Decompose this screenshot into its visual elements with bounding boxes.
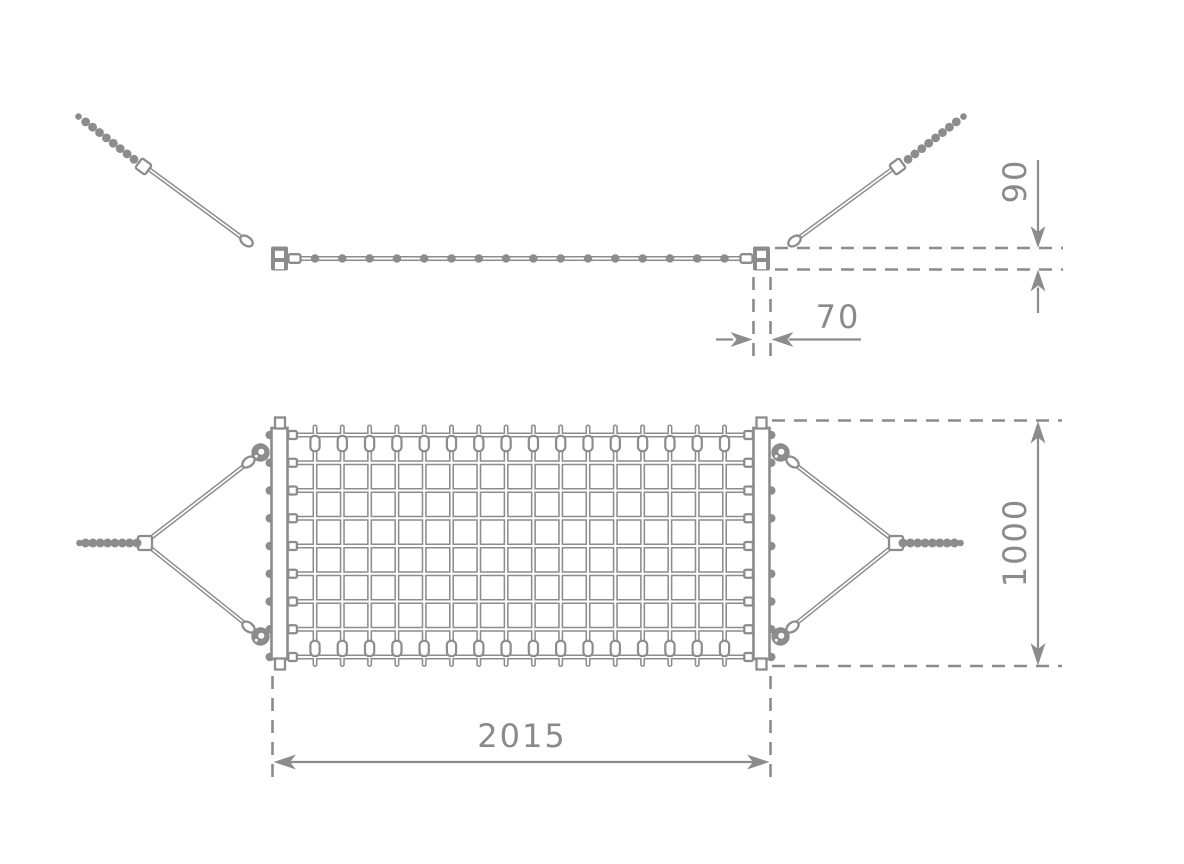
- net-intersection: [450, 517, 453, 520]
- tube-bead: [338, 254, 346, 262]
- right-rope-connector: [889, 158, 906, 175]
- net-intersection: [696, 628, 699, 631]
- twisted-rope-bead: [102, 134, 111, 143]
- right-bar-top-cap: [757, 418, 767, 429]
- net-intersection: [696, 572, 699, 575]
- net-intersection: [505, 600, 508, 603]
- net-intersection: [396, 517, 399, 520]
- tube-bead: [529, 254, 537, 262]
- net-intersection: [669, 600, 672, 603]
- net-stub-left: [288, 570, 297, 578]
- rope-sleeve-bottom: [310, 641, 319, 656]
- dimension-2015: 2015: [273, 676, 771, 784]
- net-intersection: [532, 545, 535, 548]
- net-intersection: [559, 489, 562, 492]
- net-intersection: [396, 600, 399, 603]
- rope-sleeve-bottom: [583, 641, 592, 656]
- net-intersection: [423, 628, 426, 631]
- net-stub-right: [744, 487, 753, 495]
- twisted-rope-bead: [911, 150, 920, 159]
- dim-70-arrowhead-right: [731, 332, 753, 347]
- net-intersection: [559, 572, 562, 575]
- net-intersection: [696, 517, 699, 520]
- net-intersection: [505, 517, 508, 520]
- net-intersection: [368, 545, 371, 548]
- net-ropes-core: [288, 427, 754, 665]
- technical-drawing-canvas: 90 70 1000 2015: [0, 0, 1184, 864]
- net-intersection: [696, 600, 699, 603]
- twisted-rope-bead: [116, 144, 125, 153]
- net-intersection: [532, 572, 535, 575]
- net-intersection: [477, 545, 480, 548]
- chain-link: [240, 619, 256, 635]
- net-intersection: [641, 600, 644, 603]
- net-intersection: [450, 545, 453, 548]
- rope-sleeve-bottom: [693, 641, 702, 656]
- net-intersection: [341, 517, 344, 520]
- net-intersection: [450, 572, 453, 575]
- tube-bead: [584, 254, 592, 262]
- shackle-pin: [255, 639, 258, 642]
- left-edge-bar: [272, 428, 288, 659]
- rope-sleeve-top: [420, 436, 429, 451]
- net-intersection: [669, 461, 672, 464]
- net-intersection: [423, 489, 426, 492]
- net-intersection: [669, 489, 672, 492]
- tube-bead: [557, 254, 565, 262]
- net-intersection: [696, 489, 699, 492]
- net-intersection: [505, 489, 508, 492]
- twisted-rope-bead: [95, 128, 104, 137]
- net-intersection: [559, 600, 562, 603]
- rope-sleeve-top: [365, 436, 374, 451]
- rope-sleeve-top: [447, 436, 456, 451]
- net-intersection: [723, 545, 726, 548]
- rope-sleeve-top: [392, 436, 401, 451]
- net-stub-right: [744, 431, 753, 439]
- net-intersection: [314, 489, 317, 492]
- net-intersection: [587, 600, 590, 603]
- net-intersection: [450, 628, 453, 631]
- left-twisted-rope-end: [75, 113, 138, 163]
- rope-sleeve-bottom: [474, 641, 483, 656]
- shackle-pin: [775, 455, 778, 458]
- rope-sleeve-top: [665, 436, 674, 451]
- net-intersection: [505, 628, 508, 631]
- hammock-technical-drawing: 90 70 1000 2015: [0, 0, 1184, 864]
- rope-sleeve-bottom: [392, 641, 401, 656]
- net-intersection: [477, 489, 480, 492]
- shackle-pin: [255, 455, 258, 458]
- net-intersection: [559, 628, 562, 631]
- rope-sleeve-bottom: [502, 641, 511, 656]
- net-intersection: [587, 628, 590, 631]
- net-intersection: [532, 628, 535, 631]
- chain-link: [784, 619, 800, 635]
- dimension-70: 70: [716, 277, 861, 362]
- twisted-rope-bead: [109, 139, 118, 148]
- net-intersection: [423, 545, 426, 548]
- left-chain-link: [238, 233, 254, 248]
- net-stub-left: [288, 598, 297, 606]
- net-intersection: [587, 572, 590, 575]
- tube-bead: [365, 254, 373, 262]
- net-intersection: [341, 461, 344, 464]
- twisted-rope-bead: [945, 123, 954, 132]
- rope-sleeve-bottom: [420, 641, 429, 656]
- net-intersection: [477, 628, 480, 631]
- rope-sleeve-bottom: [447, 641, 456, 656]
- twisted-rope-bead: [81, 539, 90, 548]
- net-intersection: [723, 517, 726, 520]
- rope-sleeve-bottom: [338, 641, 347, 656]
- net-intersection: [368, 572, 371, 575]
- twisted-rope-bead: [88, 123, 97, 132]
- net-intersection: [641, 461, 644, 464]
- net-intersection: [723, 600, 726, 603]
- net-intersection: [614, 489, 617, 492]
- net-intersection: [614, 461, 617, 464]
- shackle-hole: [258, 633, 264, 639]
- twisted-rope-bead: [123, 150, 132, 159]
- net-intersection: [614, 517, 617, 520]
- net-intersection: [532, 461, 535, 464]
- rope-sleeve-bottom: [529, 641, 538, 656]
- net-intersection: [450, 461, 453, 464]
- twisted-rope-bead: [924, 139, 933, 148]
- left-bar-bottom-cap: [275, 659, 285, 670]
- tube-bead: [502, 254, 510, 262]
- right-suspension-rope: [791, 169, 893, 244]
- tube-bead: [311, 254, 319, 262]
- rope-sleeve-top: [611, 436, 620, 451]
- tube-bead: [420, 254, 428, 262]
- right-chain-link: [786, 233, 802, 248]
- net-intersection: [423, 461, 426, 464]
- right-twisted-rope-end: [899, 539, 964, 548]
- dim-2015-label: 2015: [477, 717, 566, 755]
- net-intersection: [587, 517, 590, 520]
- chain-link: [240, 454, 256, 470]
- net-intersection: [587, 461, 590, 464]
- net-intersection: [532, 517, 535, 520]
- dim-1000-label: 1000: [996, 498, 1034, 587]
- twisted-rope-bead: [931, 134, 940, 143]
- plan-view: [76, 418, 964, 670]
- tube-bead: [475, 254, 483, 262]
- net-intersection: [532, 489, 535, 492]
- net-intersection: [559, 461, 562, 464]
- net-intersection: [368, 628, 371, 631]
- rope-sleeve-top: [693, 436, 702, 451]
- net-intersection: [614, 572, 617, 575]
- twisted-rope-bead: [950, 539, 959, 548]
- twisted-rope-bead: [81, 117, 90, 126]
- dimension-90: 90: [775, 159, 1063, 313]
- net-intersection: [341, 628, 344, 631]
- net-intersection: [423, 600, 426, 603]
- right-edge-bar: [754, 428, 770, 659]
- twisted-rope-bead: [917, 144, 926, 153]
- net-intersection: [396, 461, 399, 464]
- twisted-rope-bead: [904, 155, 913, 164]
- net-intersection: [641, 545, 644, 548]
- left-clamp-stub: [289, 254, 301, 263]
- net-intersection: [641, 489, 644, 492]
- net-intersection: [559, 545, 562, 548]
- net-intersection: [614, 545, 617, 548]
- net-intersection: [341, 600, 344, 603]
- net-intersection: [723, 489, 726, 492]
- dim-70-label: 70: [816, 298, 861, 336]
- rope-sleeve-top: [338, 436, 347, 451]
- net-stub-right: [744, 542, 753, 550]
- rope-sleeve-top: [638, 436, 647, 451]
- net-intersection: [368, 517, 371, 520]
- net-intersection: [723, 461, 726, 464]
- net-stub-left: [288, 487, 297, 495]
- left-twisted-rope-end: [76, 539, 141, 548]
- right-bar-bottom-cap: [757, 659, 767, 670]
- net-intersection: [505, 461, 508, 464]
- net-stub-left: [288, 459, 297, 467]
- net-intersection: [341, 545, 344, 548]
- net-intersection: [669, 517, 672, 520]
- net-intersection: [641, 572, 644, 575]
- tube-bead: [720, 254, 728, 262]
- shackle-hole: [778, 633, 784, 639]
- net-intersection: [696, 461, 699, 464]
- net-intersection: [477, 600, 480, 603]
- net-intersection: [559, 517, 562, 520]
- net-intersection: [723, 628, 726, 631]
- net-stub-right: [744, 625, 753, 633]
- net-intersection: [696, 545, 699, 548]
- net-intersection: [477, 517, 480, 520]
- right-clamp-stub: [741, 254, 753, 263]
- chain-link: [784, 454, 800, 470]
- net-stub-right: [744, 514, 753, 522]
- net-stub-left: [288, 625, 297, 633]
- net-intersection: [614, 628, 617, 631]
- left-suspension-bridle: [150, 459, 253, 630]
- tube-bead: [611, 254, 619, 262]
- net-intersection: [341, 572, 344, 575]
- net-intersection: [641, 517, 644, 520]
- net-intersection: [450, 489, 453, 492]
- net-intersection: [669, 545, 672, 548]
- net-intersection: [477, 572, 480, 575]
- net-stub-left: [288, 653, 297, 661]
- net-intersection: [450, 600, 453, 603]
- net-intersection: [396, 545, 399, 548]
- rope-sleeve-top: [502, 436, 511, 451]
- shackle-hole: [258, 449, 264, 455]
- rope-sleeve-bottom: [556, 641, 565, 656]
- rope-sleeve-top: [310, 436, 319, 451]
- net-intersection: [505, 572, 508, 575]
- rope-sleeve-bottom: [611, 641, 620, 656]
- net-intersection: [505, 545, 508, 548]
- net-intersection: [314, 461, 317, 464]
- tube-bead: [447, 254, 455, 262]
- twisted-rope-bead: [952, 117, 961, 126]
- net-intersection: [669, 572, 672, 575]
- net-intersection: [341, 489, 344, 492]
- net-intersection: [314, 600, 317, 603]
- net-intersection: [669, 628, 672, 631]
- right-suspension-bridle: [788, 459, 891, 630]
- twisted-rope-bead: [130, 155, 139, 164]
- net-intersection: [314, 517, 317, 520]
- twisted-rope-tip: [75, 113, 82, 120]
- rope-sleeve-bottom: [665, 641, 674, 656]
- net-intersection: [396, 572, 399, 575]
- net-intersection: [368, 600, 371, 603]
- left-suspension-rope: [148, 169, 250, 244]
- net-stub-right: [744, 459, 753, 467]
- dim-90-label: 90: [996, 159, 1034, 204]
- tube-bead: [393, 254, 401, 262]
- net-intersection: [477, 461, 480, 464]
- net-intersection: [396, 489, 399, 492]
- rope-sleeve-bottom: [638, 641, 647, 656]
- rope-sleeve-top: [474, 436, 483, 451]
- rope-sleeve-bottom: [365, 641, 374, 656]
- net-intersection: [587, 489, 590, 492]
- rope-sleeve-bottom: [720, 641, 729, 656]
- net-stub-right: [744, 598, 753, 606]
- tube-bead: [666, 254, 674, 262]
- net-intersection: [314, 572, 317, 575]
- net-stub-left: [288, 431, 297, 439]
- net-intersection: [641, 628, 644, 631]
- tube-bead: [693, 254, 701, 262]
- shackle-pin: [775, 639, 778, 642]
- net-stub-right: [744, 653, 753, 661]
- net-intersection: [314, 545, 317, 548]
- rope-sleeve-top: [583, 436, 592, 451]
- net-intersection: [723, 572, 726, 575]
- rope-sleeve-top: [720, 436, 729, 451]
- left-bar-top-cap: [275, 418, 285, 429]
- side-view: [75, 113, 967, 270]
- right-twisted-rope-end: [904, 113, 967, 163]
- rope-sleeve-top: [556, 436, 565, 451]
- tube-bead: [638, 254, 646, 262]
- net-intersection: [396, 628, 399, 631]
- net-stub-right: [744, 570, 753, 578]
- left-end-clamp: [271, 247, 288, 271]
- net-stub-left: [288, 514, 297, 522]
- net-intersection: [532, 600, 535, 603]
- net-intersection: [368, 461, 371, 464]
- net-intersection: [368, 489, 371, 492]
- net-intersection: [587, 545, 590, 548]
- net-intersection: [423, 572, 426, 575]
- twisted-rope-bead: [938, 128, 947, 137]
- twisted-rope-tip: [960, 113, 967, 120]
- net-intersection: [423, 517, 426, 520]
- right-end-clamp: [753, 247, 770, 271]
- rope-sleeve-top: [529, 436, 538, 451]
- net-stub-left: [288, 542, 297, 550]
- net-intersection: [314, 628, 317, 631]
- net-intersection: [614, 600, 617, 603]
- shackle-hole: [778, 449, 784, 455]
